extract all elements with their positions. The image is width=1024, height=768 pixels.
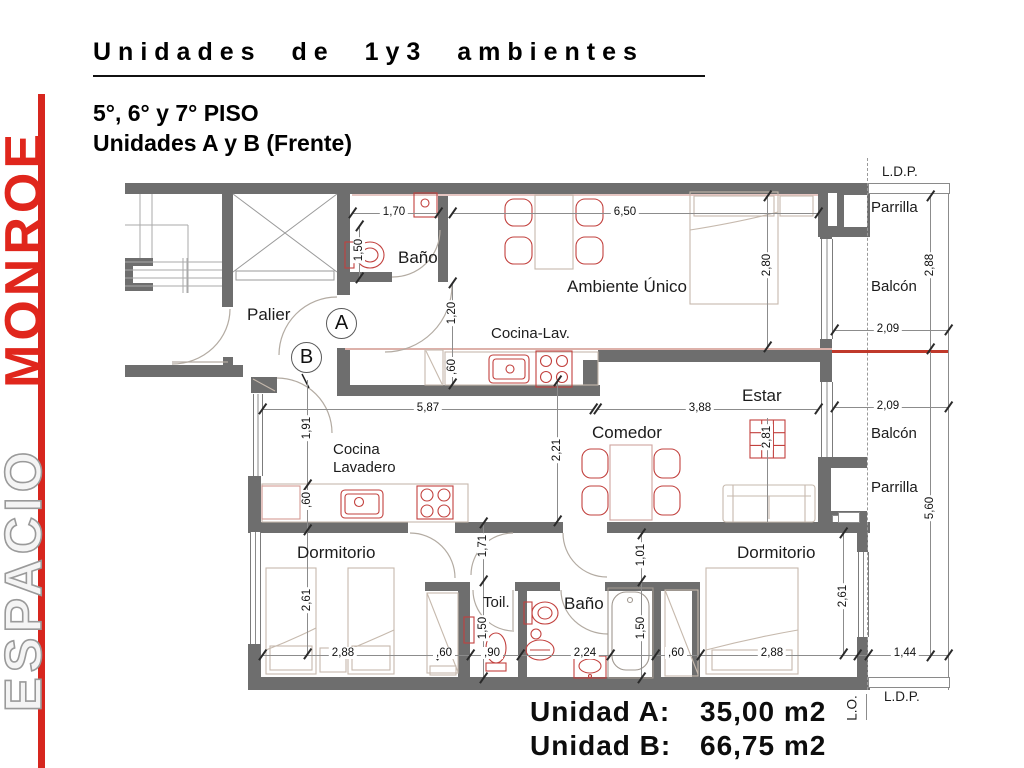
- dim-label: 1,01: [635, 542, 647, 568]
- dim-line: [262, 655, 948, 656]
- corner-window: [838, 512, 860, 523]
- wall: [425, 582, 470, 591]
- room-label-toilette: Toil.: [483, 594, 510, 611]
- dim-label: 2,61: [301, 587, 313, 613]
- wall: [518, 591, 527, 677]
- unit-a-label: Unidad A:: [530, 696, 670, 728]
- stairs: [125, 194, 222, 293]
- dim-label: 2,80: [761, 252, 773, 278]
- lot-line: [867, 158, 868, 690]
- dim-label: 2,88: [758, 647, 786, 659]
- brand-monroe: MONROE: [0, 130, 54, 388]
- wall: [598, 350, 832, 362]
- dim-label: 5,60: [924, 495, 936, 521]
- room-label-parrilla-a: Parrilla: [871, 199, 918, 216]
- unit-marker-b-letter: B: [300, 346, 313, 369]
- parrilla-a-inner: [843, 194, 868, 228]
- wall: [458, 591, 470, 677]
- wall: [583, 360, 598, 388]
- dim-label: ,90: [481, 647, 503, 659]
- wall: [248, 677, 870, 690]
- wall-parrilla-b: [818, 457, 867, 468]
- red-division-line: [345, 348, 832, 350]
- wall: [605, 582, 700, 591]
- floorplan-page: { "brand": { "espacio": "ESPACIO", "monr…: [0, 0, 1024, 768]
- dim-label: 1,70: [380, 206, 408, 218]
- lo-tick-line: [866, 694, 867, 720]
- wall: [607, 522, 870, 533]
- brand-espacio: ESPACIO: [0, 447, 54, 712]
- wall: [125, 183, 868, 194]
- room-label-ambiente-unico: Ambiente Único: [567, 277, 687, 297]
- ldp-slab-bottom: [868, 677, 950, 688]
- dim-label: 2,88: [924, 252, 936, 278]
- room-label-estar: Estar: [742, 386, 782, 406]
- parrilla-a-opening: [827, 192, 838, 227]
- room-label-bano-b: Baño: [564, 594, 604, 614]
- wall: [125, 365, 243, 377]
- floor-subtitle: 5°, 6° y 7° PISO: [93, 100, 259, 127]
- wall: [251, 377, 277, 393]
- dim-label: 1,50: [353, 237, 365, 263]
- dim-label: ,60: [446, 357, 458, 377]
- room-label-balcon-b: Balcón: [871, 425, 917, 442]
- dim-label: 1,50: [635, 615, 647, 641]
- wall: [222, 194, 233, 307]
- room-label-balcon-a: Balcón: [871, 278, 917, 295]
- room-label-comedor: Comedor: [592, 423, 662, 443]
- dim-label: 3,88: [686, 402, 714, 414]
- room-label-dormitorio-left: Dormitorio: [297, 543, 375, 563]
- wall: [248, 522, 408, 533]
- dim-label: 2,61: [837, 583, 849, 609]
- label-ldp-top: L.D.P.: [882, 164, 918, 179]
- unit-marker-a-letter: A: [335, 312, 348, 335]
- window: [821, 239, 833, 339]
- dim-label: 1,91: [301, 415, 313, 441]
- unit-b-label: Unidad B:: [530, 730, 671, 762]
- dim-label: 1,44: [891, 647, 919, 659]
- room-label-cocina: Cocina: [333, 441, 380, 458]
- dim-label: 6,50: [611, 206, 639, 218]
- elevator: [233, 194, 337, 280]
- label-lo: L.O.: [845, 695, 860, 721]
- wall: [343, 272, 392, 282]
- dim-label: 2,24: [571, 647, 599, 659]
- unit-marker-a: A: [326, 308, 357, 339]
- unit-marker-b: B: [291, 342, 322, 373]
- dim-label: 2,09: [874, 323, 902, 335]
- dim-label: 2,21: [551, 437, 563, 463]
- room-label-dormitorio-right: Dormitorio: [737, 543, 815, 563]
- page-title: Unidades de 1y3 ambientes: [93, 38, 705, 77]
- balcony-edge-line: [948, 183, 949, 690]
- window: [821, 382, 833, 457]
- dim-label: 1,20: [446, 300, 458, 326]
- wall: [125, 258, 133, 291]
- dim-label: 1,71: [477, 533, 489, 559]
- room-label-cocina-lav: Cocina-Lav.: [491, 325, 570, 342]
- dim-label: 5,87: [414, 402, 442, 414]
- dim-label: 2,81: [761, 424, 773, 450]
- units-subtitle: Unidades A y B (Frente): [93, 130, 352, 157]
- room-label-palier: Palier: [247, 305, 290, 325]
- wall: [820, 362, 832, 382]
- dim-label: ,60: [433, 647, 455, 659]
- dim-label: ,60: [301, 490, 313, 510]
- red-finish-line: [352, 194, 818, 196]
- dim-label: ,60: [665, 647, 687, 659]
- unit-a-area: 35,00 m2: [700, 696, 826, 728]
- wall: [692, 582, 700, 677]
- window: [250, 532, 261, 644]
- room-label-parrilla-b: Parrilla: [871, 479, 918, 496]
- wall: [820, 339, 832, 362]
- wall: [223, 357, 233, 365]
- window: [253, 394, 263, 476]
- dim-label: 2,88: [329, 647, 357, 659]
- label-ldp-bottom: L.D.P.: [884, 689, 920, 704]
- wall: [337, 385, 600, 396]
- dim-label: 1,50: [477, 615, 489, 641]
- room-label-bano-a: Baño: [398, 248, 438, 268]
- wall: [515, 582, 560, 591]
- unit-b-area: 66,75 m2: [700, 730, 826, 762]
- ldp-slab-top: [868, 183, 950, 194]
- wall: [455, 522, 563, 533]
- room-label-lavadero: Lavadero: [333, 459, 396, 476]
- wall: [652, 591, 661, 677]
- wall: [248, 476, 261, 527]
- dim-label: 2,09: [874, 400, 902, 412]
- door-arcs: [172, 230, 608, 634]
